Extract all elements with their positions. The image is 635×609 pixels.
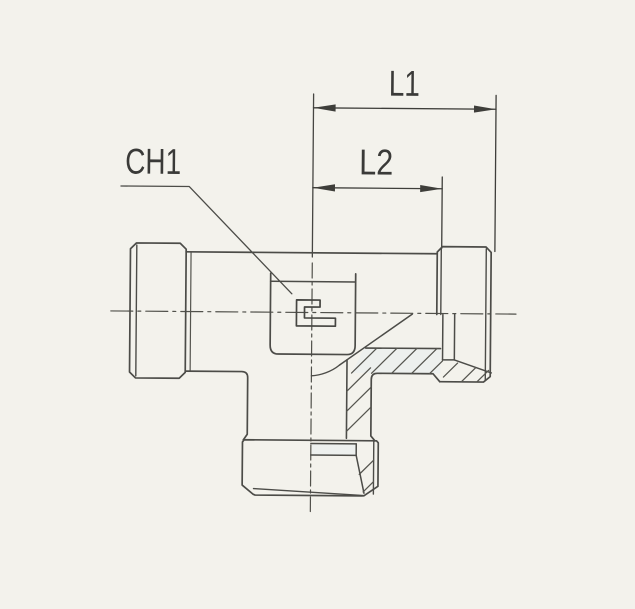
svg-text:L1: L1 xyxy=(389,63,420,104)
svg-text:L2: L2 xyxy=(359,141,393,182)
svg-text:CH1: CH1 xyxy=(125,141,181,182)
